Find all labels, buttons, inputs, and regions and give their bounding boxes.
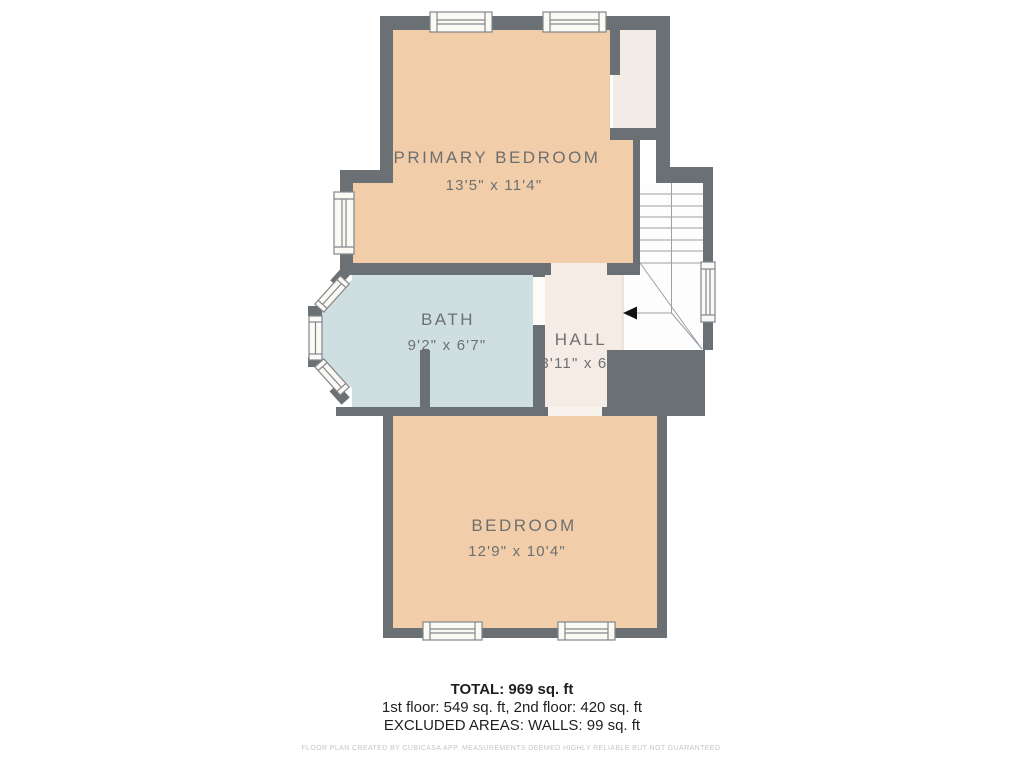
wall-block [607, 350, 705, 410]
floor-plan: PRIMARY BEDROOM 13'5" x 11'4" BATH 9'2" … [0, 0, 1024, 768]
floor-areas-text: 1st floor: 549 sq. ft, 2nd floor: 420 sq… [0, 699, 1024, 717]
total-area-text: TOTAL: 969 sq. ft [0, 680, 1024, 699]
bedroom-dims: 12'9" x 10'4" [468, 543, 566, 560]
bath-label: BATH [421, 310, 475, 329]
summary-footer: TOTAL: 969 sq. ft 1st floor: 549 sq. ft,… [0, 680, 1024, 752]
doorway-bath-to-hall [533, 277, 545, 325]
primary-bedroom-label: PRIMARY BEDROOM [394, 148, 601, 167]
window-bottom-2 [558, 622, 615, 640]
window-left [334, 192, 354, 254]
hall-label: HALL [555, 330, 608, 349]
doorway-primary-to-hall [551, 263, 607, 275]
window-top-1 [430, 12, 492, 32]
excluded-areas-text: EXCLUDED AREAS: WALLS: 99 sq. ft [0, 717, 1024, 735]
disclaimer-text: FLOOR PLAN CREATED BY CUBICASA APP. MEAS… [0, 745, 1024, 752]
window-stairs-right [701, 262, 715, 322]
room-primary-bedroom [352, 30, 633, 263]
bedroom-label: BEDROOM [471, 516, 576, 535]
doorway-hall-to-bedroom [548, 407, 602, 416]
floor-plan-page: PRIMARY BEDROOM 13'5" x 11'4" BATH 9'2" … [0, 0, 1024, 768]
primary-bedroom-dims: 13'5" x 11'4" [446, 177, 543, 194]
stairs-winder [623, 263, 703, 350]
bath-dims: 9'2" x 6'7" [408, 337, 487, 354]
window-bottom-1 [423, 622, 482, 640]
window-top-2 [543, 12, 606, 32]
window-bay-middle [309, 316, 322, 360]
